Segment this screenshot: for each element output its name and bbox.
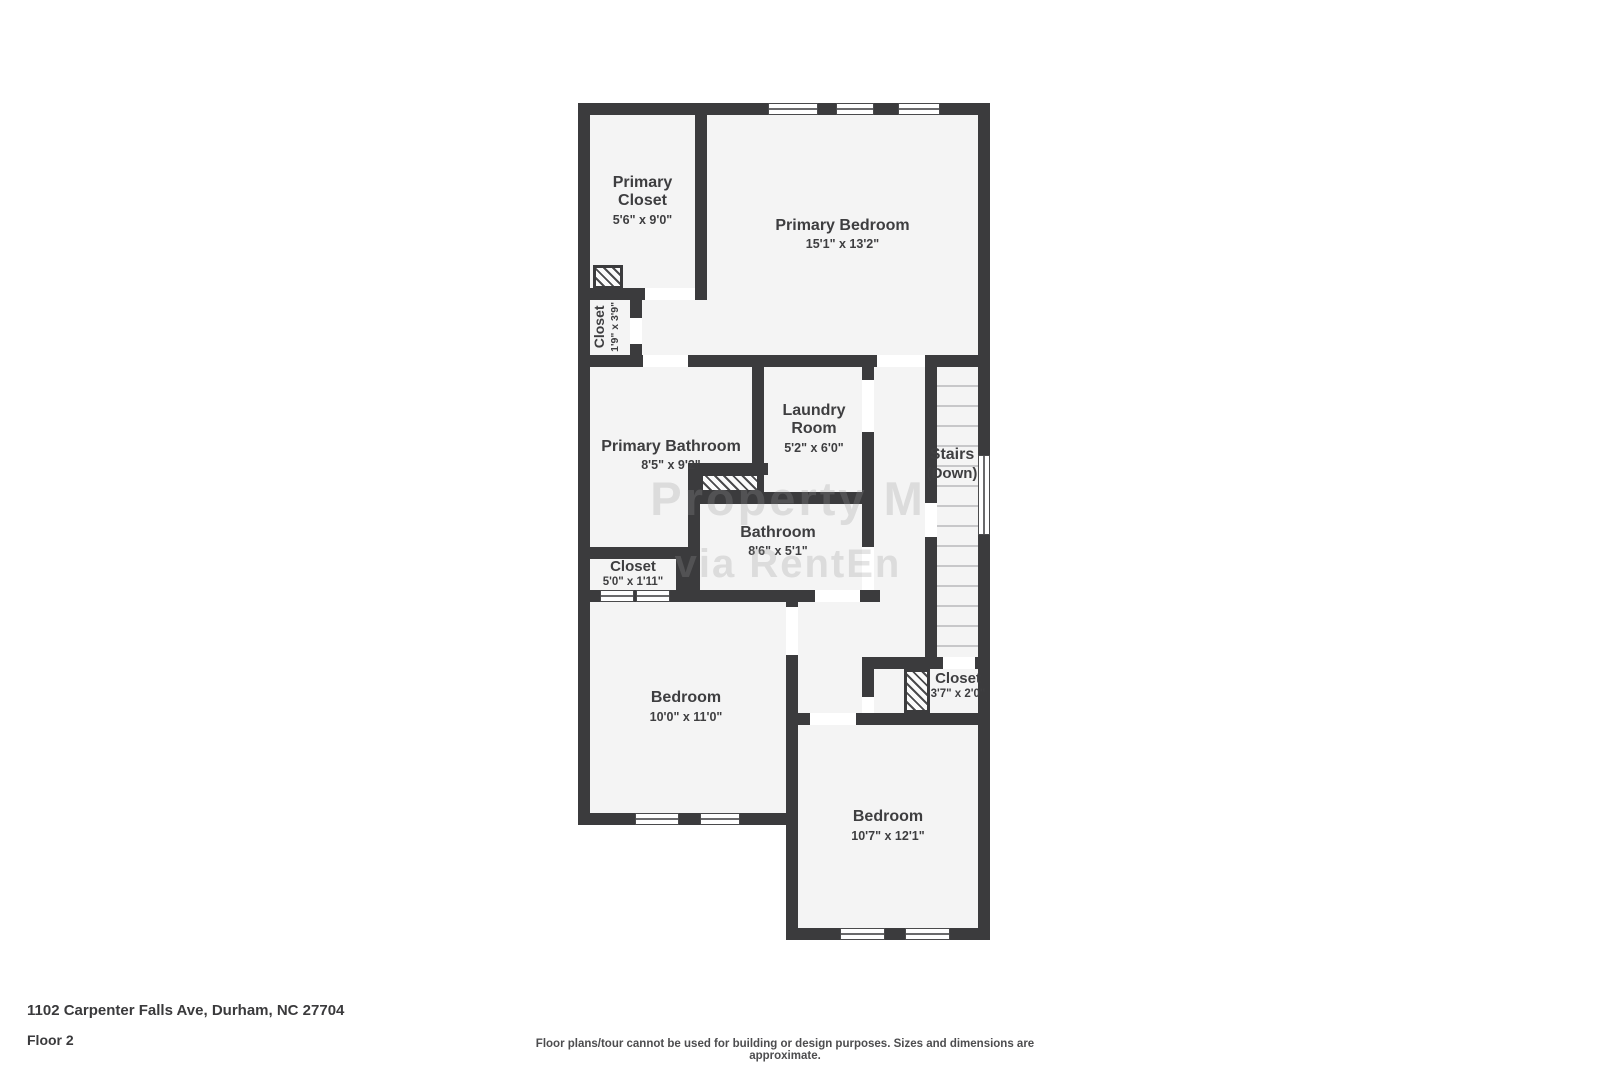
room-label-bedroom-left: Bedroom 10'0" x 11'0" (590, 602, 782, 813)
wall-primary-closet-divider (695, 103, 707, 300)
room-label-closet-hall: Closet 5'0" x 1'11" (584, 558, 682, 590)
window-icon (836, 103, 874, 115)
door-opening (877, 355, 925, 367)
door-opening (862, 547, 874, 590)
room-dims: 5'6" x 9'0" (613, 211, 673, 229)
wall-closet-right-left (862, 657, 874, 697)
floor-label: Floor 2 (27, 1032, 74, 1048)
room-name: Primary Closet (590, 174, 695, 212)
floorplan-page: Primary Closet 5'6" x 9'0" Primary Bedro… (0, 0, 1600, 1066)
window-icon (898, 103, 940, 115)
room-label-stairs: Stairs (Down) (914, 433, 990, 497)
rotated-label: Closet 1'9" x 3'9" (591, 302, 623, 352)
door-opening (810, 713, 856, 725)
room-name: Closet (591, 302, 608, 352)
room-name: Bathroom (740, 524, 816, 543)
room-name: Closet (610, 558, 656, 576)
sliding-door-icon (636, 590, 670, 602)
room-dims: 3'7" x 2'0" (931, 687, 986, 702)
property-address: 1102 Carpenter Falls Ave, Durham, NC 277… (27, 1002, 344, 1019)
window-icon (905, 928, 950, 940)
room-dims: (Down) (927, 465, 978, 484)
stairs-treads (937, 367, 978, 661)
room-dims: 5'0" x 1'11" (603, 575, 664, 590)
window-icon (768, 103, 818, 115)
room-name: Primary Bedroom (775, 217, 909, 236)
room-name: Laundry Room (766, 402, 862, 440)
room-label-bedroom-right: Bedroom 10'7" x 12'1" (798, 725, 978, 928)
door-opening (925, 503, 937, 537)
door-opening (643, 355, 688, 367)
wall-outer-left (578, 103, 590, 825)
window-icon (840, 928, 885, 940)
room-name: Primary Bathroom (601, 438, 741, 457)
room-name: Bedroom (651, 689, 721, 708)
room-label-closet-right: Closet 3'7" x 2'0" (926, 661, 990, 711)
window-icon (700, 813, 740, 825)
room-dims: 5'2" x 6'0" (784, 439, 844, 457)
room-label-primary-bedroom: Primary Bedroom 15'1" x 13'2" (707, 115, 978, 355)
room-name: Closet (935, 670, 981, 688)
room-label-laundry-room: Laundry Room 5'2" x 6'0" (766, 367, 862, 492)
door-opening (786, 607, 798, 655)
door-opening (862, 380, 874, 432)
room-label-closet-left: Closet 1'9" x 3'9" (582, 295, 632, 359)
door-opening (862, 697, 874, 713)
room-label-primary-closet: Primary Closet 5'6" x 9'0" (590, 115, 695, 288)
wall-bedroom-left-bottom (578, 813, 798, 825)
door-opening (815, 590, 860, 602)
room-dims: 8'5" x 9'2" (641, 456, 701, 474)
window-icon (635, 813, 679, 825)
disclaimer-text: Floor plans/tour cannot be used for buil… (535, 1038, 1035, 1062)
floor-plan-canvas: Primary Closet 5'6" x 9'0" Primary Bedro… (578, 103, 990, 940)
room-name: Bedroom (853, 808, 923, 827)
sliding-door-icon (600, 590, 634, 602)
room-dims: 10'0" x 11'0" (650, 708, 723, 726)
door-opening (645, 288, 695, 300)
wall-middle-horizontal (578, 355, 990, 367)
room-dims: 10'7" x 12'1" (851, 827, 924, 845)
wall-bedroom-right-bottom (786, 928, 990, 940)
room-name: Stairs (930, 446, 974, 465)
room-dims: 15'1" x 13'2" (806, 235, 879, 253)
room-dims: 8'6" x 5'1" (748, 542, 808, 560)
room-label-bathroom: Bathroom 8'6" x 5'1" (694, 502, 862, 582)
room-dims: 1'9" x 3'9" (608, 302, 623, 352)
